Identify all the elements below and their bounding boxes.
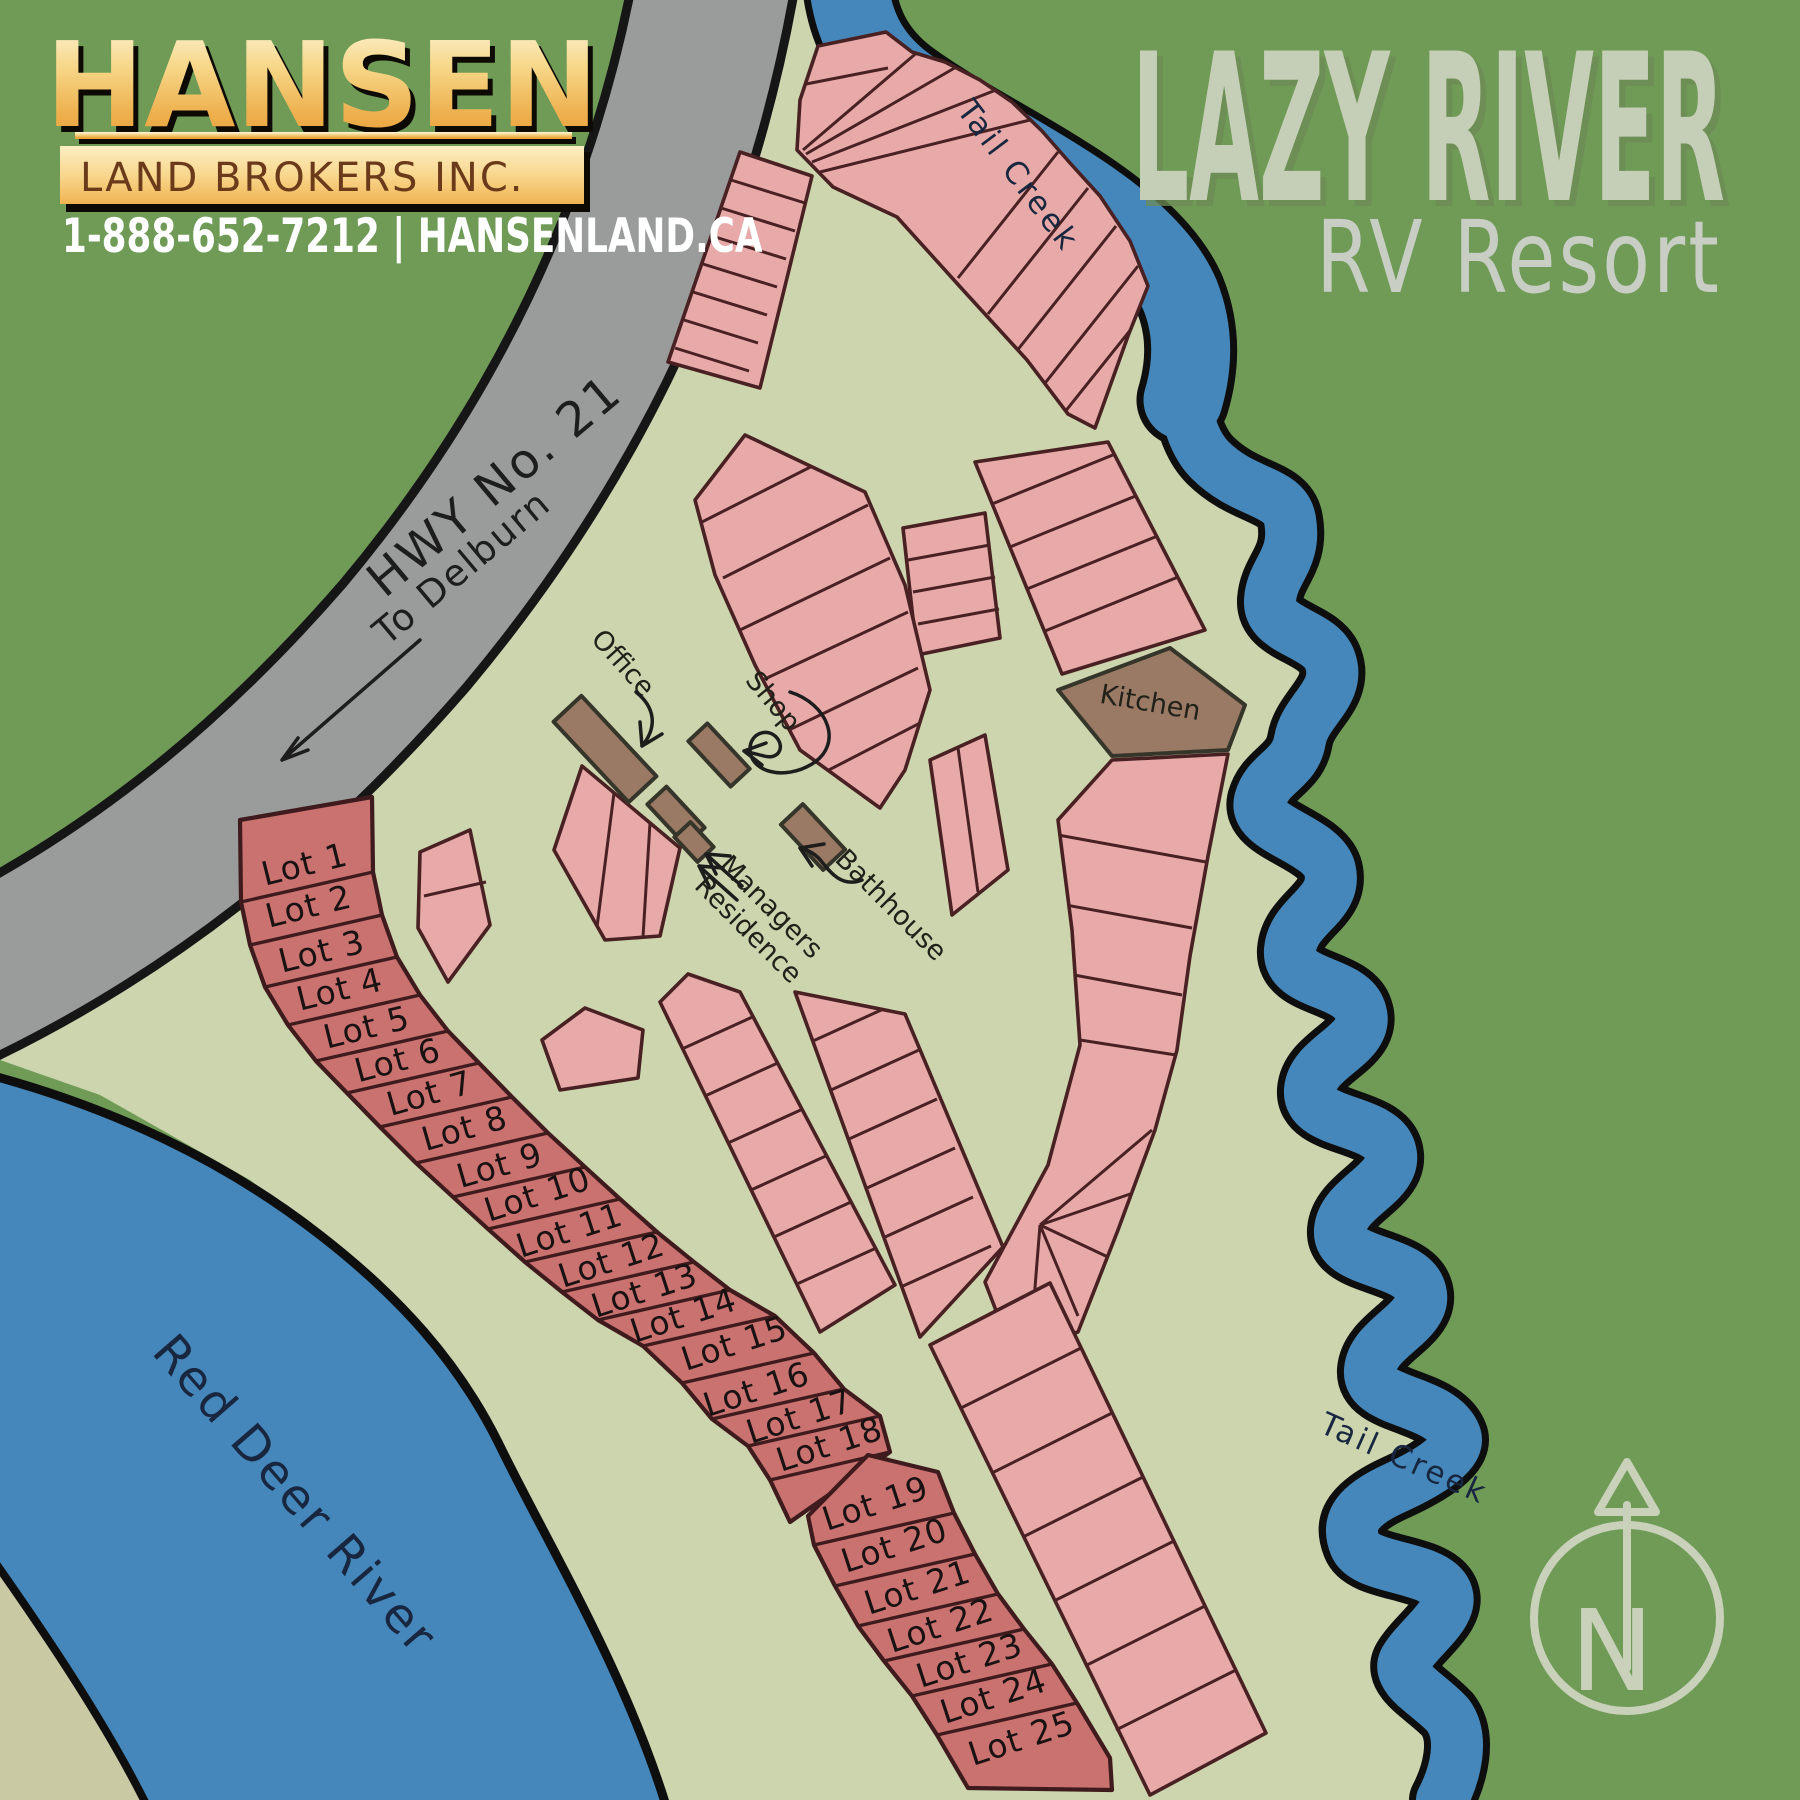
poster: Lot 1 Lot 2 Lot 3 Lot 4 Lot 5 Lot 6 Lot … [0,0,1800,1800]
logo-subtitle: LAND BROKERS INC. [80,155,525,201]
lazy-river-resort-map: Lot 1 Lot 2 Lot 3 Lot 4 Lot 5 Lot 6 Lot … [0,0,1800,1800]
logo-contact: 1-888-652-7212 | HANSENLAND.CA [62,208,763,263]
compass-north-label: N [1570,1587,1654,1717]
logo-underline [75,132,572,139]
title-sub: RV Resort [1316,201,1722,317]
